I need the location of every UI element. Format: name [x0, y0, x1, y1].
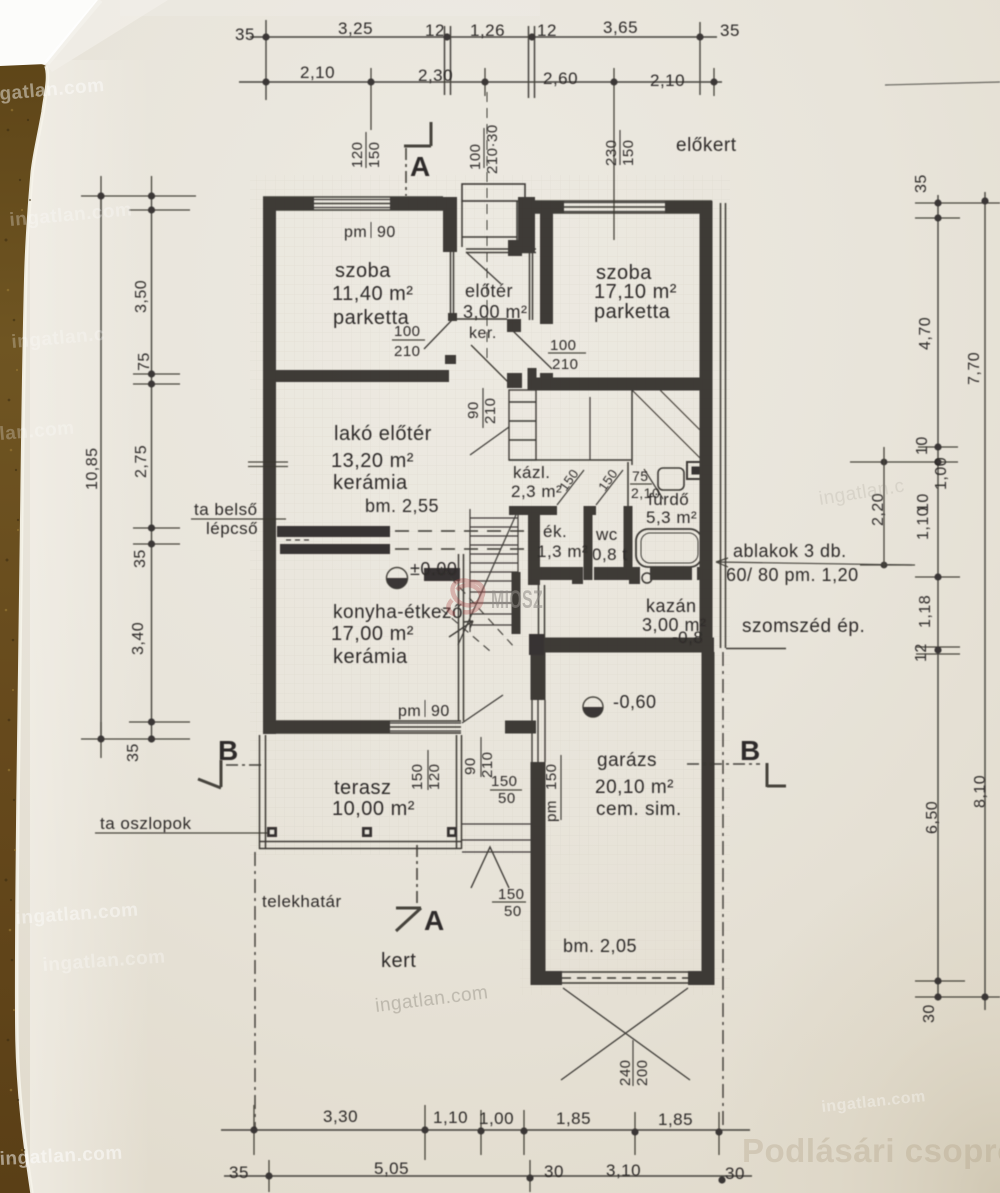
- svg-text:előtér: előtér: [465, 281, 513, 301]
- svg-text:-0,60: -0,60: [613, 692, 657, 712]
- svg-text:90: 90: [377, 224, 396, 241]
- svg-text:garázs: garázs: [597, 750, 657, 771]
- svg-text:100: 100: [550, 337, 577, 354]
- svg-text:3,30: 3,30: [323, 1107, 358, 1126]
- svg-text:240: 240: [617, 1059, 634, 1086]
- svg-text:50: 50: [504, 903, 522, 920]
- svg-text:12: 12: [537, 21, 557, 40]
- svg-text:50: 50: [498, 790, 516, 807]
- svg-text:17,00 m²: 17,00 m²: [331, 623, 414, 645]
- svg-text:230: 230: [603, 139, 620, 166]
- svg-text:75: 75: [136, 352, 153, 371]
- svg-text:Podlásári csopro: Podlásári csopro: [742, 1132, 1000, 1169]
- svg-text:30: 30: [921, 1004, 938, 1023]
- svg-text:2,3 m²: 2,3 m²: [511, 482, 562, 501]
- svg-text:90: 90: [465, 401, 482, 419]
- svg-text:konyha-étkező: konyha-étkező: [333, 602, 463, 623]
- svg-text:bm. 2,05: bm. 2,05: [563, 936, 637, 956]
- svg-text:35: 35: [125, 743, 142, 762]
- svg-text:1,26: 1,26: [470, 21, 505, 40]
- svg-text:35: 35: [913, 174, 930, 193]
- svg-text:pm: pm: [543, 800, 560, 822]
- svg-text:10,00 m²: 10,00 m²: [332, 798, 415, 820]
- svg-text:MIOSZ: MIOSZ: [491, 586, 543, 614]
- svg-text:5,05: 5,05: [374, 1159, 409, 1178]
- svg-text:150: 150: [491, 773, 518, 790]
- svg-text:parketta: parketta: [594, 301, 671, 323]
- svg-text:pm: pm: [398, 703, 421, 720]
- svg-text:11,40 m²: 11,40 m²: [332, 283, 413, 305]
- svg-text:szomszéd ép.: szomszéd ép.: [742, 616, 865, 637]
- svg-text:A: A: [424, 905, 445, 936]
- svg-text:B: B: [218, 735, 239, 766]
- svg-text:1,10: 1,10: [915, 507, 932, 540]
- svg-text:13,20 m²: 13,20 m²: [331, 450, 414, 472]
- svg-text:35: 35: [720, 21, 740, 40]
- svg-text:-0,8: -0,8: [672, 628, 703, 647]
- svg-text:cem. sim.: cem. sim.: [596, 799, 682, 820]
- svg-text:wc: wc: [595, 525, 618, 544]
- svg-text:kázl.: kázl.: [513, 463, 550, 482]
- svg-text:150: 150: [498, 886, 525, 903]
- svg-text:12: 12: [913, 643, 930, 662]
- svg-text:kert: kert: [381, 950, 416, 972]
- svg-text:10: 10: [914, 436, 931, 455]
- svg-text:ék.: ék.: [543, 522, 567, 541]
- svg-text:1,3 m²: 1,3 m²: [537, 542, 588, 561]
- svg-text:előkert: előkert: [676, 135, 737, 156]
- svg-text:120: 120: [426, 763, 443, 790]
- svg-text:kerámia: kerámia: [333, 646, 408, 668]
- svg-text:3,00 m²: 3,00 m²: [463, 302, 528, 322]
- svg-text:35: 35: [132, 549, 149, 568]
- svg-text:3,10: 3,10: [606, 1161, 641, 1180]
- svg-text:90: 90: [431, 703, 450, 720]
- svg-text:terasz: terasz: [334, 777, 391, 799]
- svg-text:lépcső: lépcső: [206, 519, 258, 538]
- svg-text:12: 12: [425, 21, 445, 40]
- svg-text:3,40: 3,40: [130, 622, 147, 655]
- svg-text:kazán: kazán: [646, 596, 697, 616]
- svg-text:8,10: 8,10: [972, 775, 989, 808]
- svg-text:3,50: 3,50: [133, 280, 150, 313]
- svg-text:2,30: 2,30: [418, 66, 453, 85]
- svg-text:6,50: 6,50: [924, 801, 941, 834]
- svg-text:100: 100: [394, 323, 421, 340]
- svg-text:35: 35: [235, 25, 255, 44]
- svg-text:ker.: ker.: [469, 325, 497, 342]
- svg-text:210: 210: [394, 343, 421, 360]
- svg-text:0,8 t: 0,8 t: [592, 545, 628, 564]
- svg-text:2,10: 2,10: [631, 485, 660, 501]
- svg-text:2,75: 2,75: [133, 445, 150, 478]
- svg-text:5,3 m²: 5,3 m²: [646, 508, 697, 527]
- svg-text:7,70: 7,70: [966, 352, 983, 385]
- svg-text:3,65: 3,65: [603, 18, 638, 37]
- svg-text:30: 30: [544, 1162, 564, 1181]
- svg-text:60/ 80 pm. 1,20: 60/ 80 pm. 1,20: [726, 565, 859, 585]
- svg-text:210·30: 210·30: [484, 124, 501, 174]
- svg-text:2,10: 2,10: [650, 71, 685, 90]
- svg-text:1,10: 1,10: [433, 1108, 468, 1127]
- svg-text:150: 150: [620, 139, 637, 166]
- svg-text:2,10: 2,10: [300, 63, 335, 82]
- svg-text:1,00: 1,00: [933, 457, 950, 490]
- svg-text:10,85: 10,85: [84, 447, 101, 490]
- svg-text:1,18: 1,18: [917, 595, 934, 628]
- svg-text:200: 200: [634, 1059, 651, 1086]
- svg-text:ablakok 3 db.: ablakok 3 db.: [733, 541, 847, 561]
- svg-text:100: 100: [467, 143, 484, 170]
- svg-text:1,85: 1,85: [556, 1109, 591, 1128]
- svg-text:A: A: [410, 151, 431, 182]
- svg-text:150: 150: [409, 763, 426, 790]
- svg-text:pm: pm: [344, 224, 367, 241]
- svg-text:szoba: szoba: [335, 260, 391, 282]
- svg-text:4,70: 4,70: [917, 317, 934, 350]
- svg-text:kerámia: kerámia: [333, 472, 408, 494]
- svg-text:210: 210: [552, 356, 579, 373]
- svg-text:B: B: [740, 735, 761, 766]
- svg-text:±0.00: ±0.00: [410, 559, 457, 579]
- svg-text:17,10 m²: 17,10 m²: [594, 281, 677, 303]
- svg-text:20,10 m²: 20,10 m²: [595, 777, 674, 798]
- svg-text:lakó előtér: lakó előtér: [334, 423, 432, 445]
- svg-text:75: 75: [632, 468, 649, 484]
- svg-text:1,85: 1,85: [658, 1110, 693, 1129]
- svg-text:telekhatár: telekhatár: [262, 892, 342, 911]
- svg-text:ta belső: ta belső: [194, 500, 258, 519]
- svg-text:210: 210: [482, 397, 499, 424]
- svg-text:bm. 2,55: bm. 2,55: [365, 496, 439, 516]
- svg-text:150: 150: [366, 141, 383, 168]
- svg-text:ta oszlopok: ta oszlopok: [100, 814, 192, 833]
- svg-text:120: 120: [349, 141, 366, 168]
- svg-text:1,00: 1,00: [479, 1109, 514, 1128]
- svg-text:90: 90: [462, 757, 479, 775]
- svg-text:150: 150: [543, 763, 560, 790]
- svg-text:3,25: 3,25: [338, 19, 373, 38]
- svg-text:2,60: 2,60: [543, 69, 578, 88]
- svg-text:35: 35: [229, 1163, 249, 1182]
